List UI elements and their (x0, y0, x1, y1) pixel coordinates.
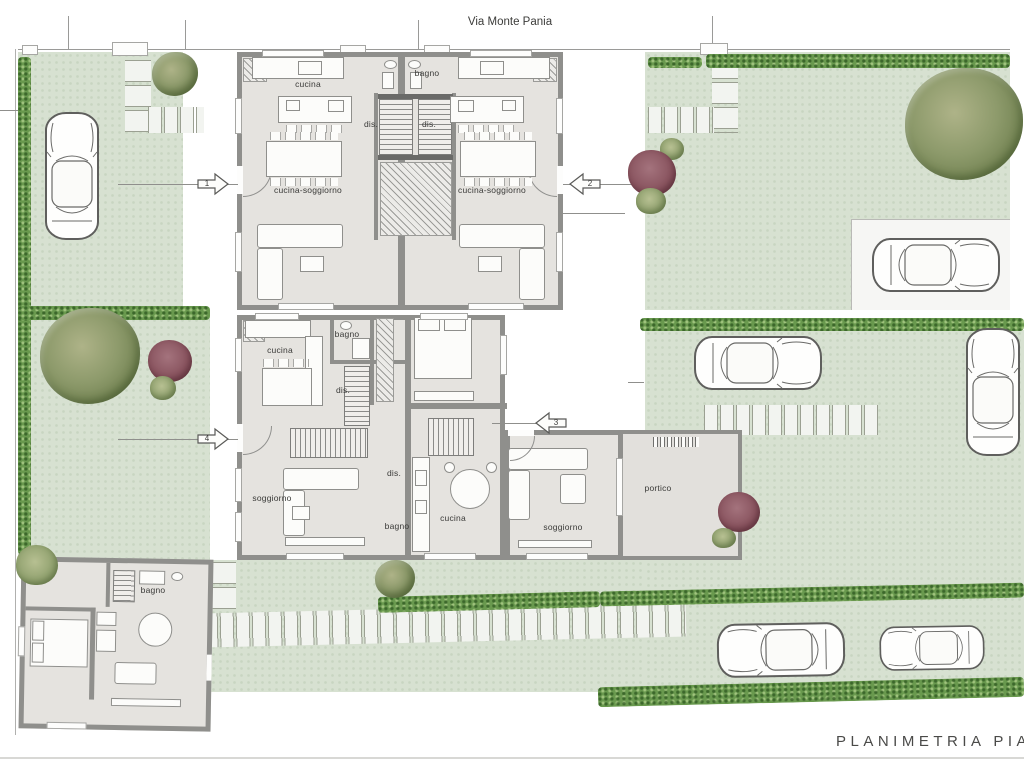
room-label-cucina-soggiorno: cucina-soggiorno (458, 185, 526, 195)
pillow (32, 621, 44, 641)
gate-post (22, 45, 38, 55)
pillow (32, 643, 44, 663)
window (47, 722, 87, 730)
chairs (270, 132, 338, 140)
car (44, 111, 100, 241)
entrance-marker-2: 2 (568, 172, 602, 196)
entrance-marker-3: 3 (534, 411, 568, 435)
window (470, 50, 532, 57)
bush (16, 545, 58, 585)
room-label-cucina: cucina (295, 79, 321, 89)
garden-northwest (18, 52, 183, 310)
window (235, 98, 242, 134)
cooktop (458, 100, 474, 112)
kitchen-counter (245, 320, 311, 338)
portico-fence (653, 437, 699, 447)
room-label-portico: portico (645, 483, 672, 493)
room-label-cucina-soggiorno: cucina-soggiorno (274, 185, 342, 195)
cooktop (480, 61, 504, 75)
car (693, 335, 823, 391)
shower (382, 72, 394, 89)
paver-path (648, 107, 714, 133)
coffee-table (300, 256, 324, 272)
tree (152, 52, 198, 96)
tv-cabinet (518, 540, 592, 548)
window (255, 313, 299, 320)
entrance-number: 4 (200, 434, 214, 443)
window (18, 626, 26, 656)
entrance-marker-1: 1 (196, 172, 230, 196)
car (878, 624, 985, 672)
survey-tick (418, 20, 419, 49)
sheet-bottom-rule (0, 757, 1024, 759)
staircase (113, 570, 136, 602)
dining-table (460, 141, 536, 177)
paver-path (148, 107, 204, 133)
window (286, 553, 344, 560)
staircase (379, 99, 413, 155)
sofa (459, 224, 545, 248)
bush (636, 188, 666, 214)
window (526, 553, 588, 560)
room-label-cucina: cucina (440, 513, 466, 523)
reference-line (0, 110, 18, 111)
tv-cabinet (111, 698, 181, 707)
coffee-table (478, 256, 502, 272)
window (420, 313, 468, 320)
bush (712, 528, 736, 548)
entrance-number: 1 (200, 179, 214, 188)
sink (286, 100, 300, 111)
shrub (718, 492, 760, 532)
chair (486, 462, 497, 473)
room-label-bagno: bagno (141, 585, 166, 595)
reference-line (628, 382, 644, 383)
pillow (418, 319, 440, 331)
gate-post (112, 42, 148, 56)
window (278, 303, 334, 310)
car (871, 237, 1001, 293)
window (235, 338, 242, 372)
sofa-chaise (508, 470, 530, 520)
survey-tick (68, 16, 69, 49)
tv-cabinet (285, 537, 365, 546)
sofa-chaise (257, 248, 283, 300)
dining-table (266, 141, 342, 177)
room-label-dis: dis. (387, 468, 401, 478)
bathtub (352, 338, 370, 359)
window (235, 512, 242, 542)
street-name-label: Via Monte Pania (468, 16, 552, 28)
stair-landing (378, 155, 453, 160)
survey-tick (185, 20, 186, 49)
room-label-cucina: cucina (267, 345, 293, 355)
coffee-table (292, 506, 310, 520)
staircase (290, 428, 368, 458)
staircase (344, 366, 370, 426)
kitchen-counter (458, 57, 550, 79)
entrance-marker-4: 4 (196, 427, 230, 451)
staircase (428, 418, 474, 456)
sofa-chaise (519, 248, 545, 300)
bath-wall (106, 563, 111, 607)
hedge-north (706, 54, 1010, 68)
room-label-dis: dis. (422, 119, 436, 129)
chairs (464, 132, 532, 140)
car (965, 327, 1021, 457)
round-table (450, 469, 490, 509)
sink (502, 100, 516, 111)
cooktop (415, 470, 427, 486)
bedroom-wall (408, 403, 507, 409)
paver-path (712, 57, 738, 133)
room-label-dis: dis. (364, 119, 378, 129)
site-boundary-left (15, 49, 16, 735)
dining-table (262, 368, 312, 406)
door-opening (206, 655, 211, 681)
sheet-title: Planimetria Piano (836, 733, 1024, 750)
stair-wall (374, 93, 378, 240)
toilet (384, 60, 397, 69)
armchair (560, 474, 586, 504)
room-label-dis: dis. (336, 385, 350, 395)
sink (415, 500, 427, 514)
reference-line (563, 213, 625, 214)
window (556, 98, 563, 134)
sofa (257, 224, 343, 248)
toilet (171, 572, 183, 581)
window (424, 553, 476, 560)
reference-line (492, 423, 540, 424)
site-plan-canvas: Via Monte Pania (0, 0, 1024, 768)
bathtub (139, 570, 165, 584)
entrance-number: 3 (549, 418, 563, 427)
bath-wall (330, 360, 408, 364)
wardrobe (376, 318, 394, 402)
room-label-soggiorno: soggiorno (543, 522, 582, 532)
shrub (148, 340, 192, 382)
bush (150, 376, 176, 400)
hedge-north (648, 57, 702, 68)
window (468, 303, 524, 310)
room-label-bagno: bagno (415, 68, 440, 78)
room-label-soggiorno: soggiorno (252, 493, 291, 503)
cooktop (298, 61, 322, 75)
sofa (114, 662, 156, 685)
sofa (283, 468, 359, 490)
window (556, 232, 563, 272)
pillow (444, 319, 466, 331)
cooktop (328, 100, 344, 112)
cooktop (96, 612, 116, 626)
window (616, 458, 623, 516)
chairs (263, 359, 309, 367)
chair (444, 462, 455, 473)
window (235, 468, 242, 502)
car (716, 621, 847, 679)
dresser (414, 391, 474, 401)
window (235, 232, 242, 272)
entrance-number: 2 (583, 179, 597, 188)
room-label-bagno: bagno (385, 521, 410, 531)
partition-wall (370, 315, 374, 405)
window (500, 335, 507, 375)
staircase-lower (380, 162, 452, 236)
building-small (19, 556, 214, 731)
door-opening (557, 166, 563, 194)
kitchen-counter (96, 630, 116, 652)
bath-wall (330, 315, 334, 363)
window (262, 50, 324, 57)
room-label-bagno: bagno (335, 329, 360, 339)
